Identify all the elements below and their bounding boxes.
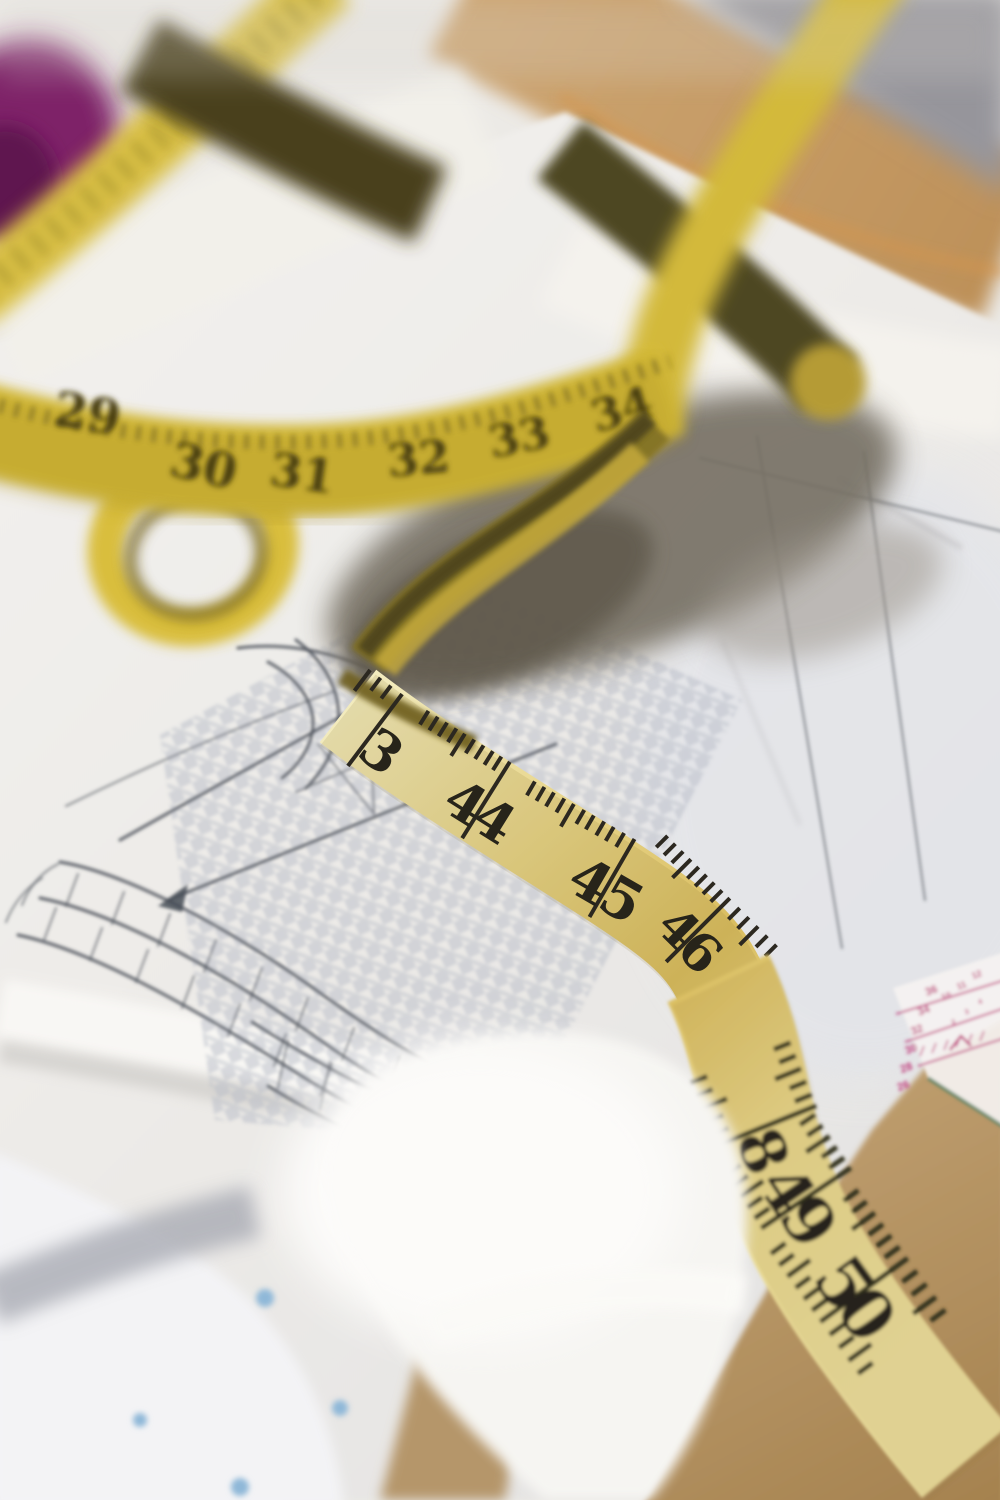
- fabric-dot: [332, 1400, 348, 1416]
- fabric-dot: [133, 1413, 147, 1427]
- fabric-dot: [256, 1289, 274, 1307]
- tape-dark-band-tip: [790, 344, 866, 420]
- tape-number-29: 29: [50, 381, 125, 447]
- top-soft-haze: [0, 0, 1000, 80]
- photo-canvas: 36 34 32 30 28 26 10 11 12 2 3 4 29: [0, 0, 1000, 1500]
- tape-number-32: 32: [385, 429, 452, 487]
- fabric-dot: [231, 1478, 249, 1496]
- tape-number-31: 31: [267, 442, 338, 504]
